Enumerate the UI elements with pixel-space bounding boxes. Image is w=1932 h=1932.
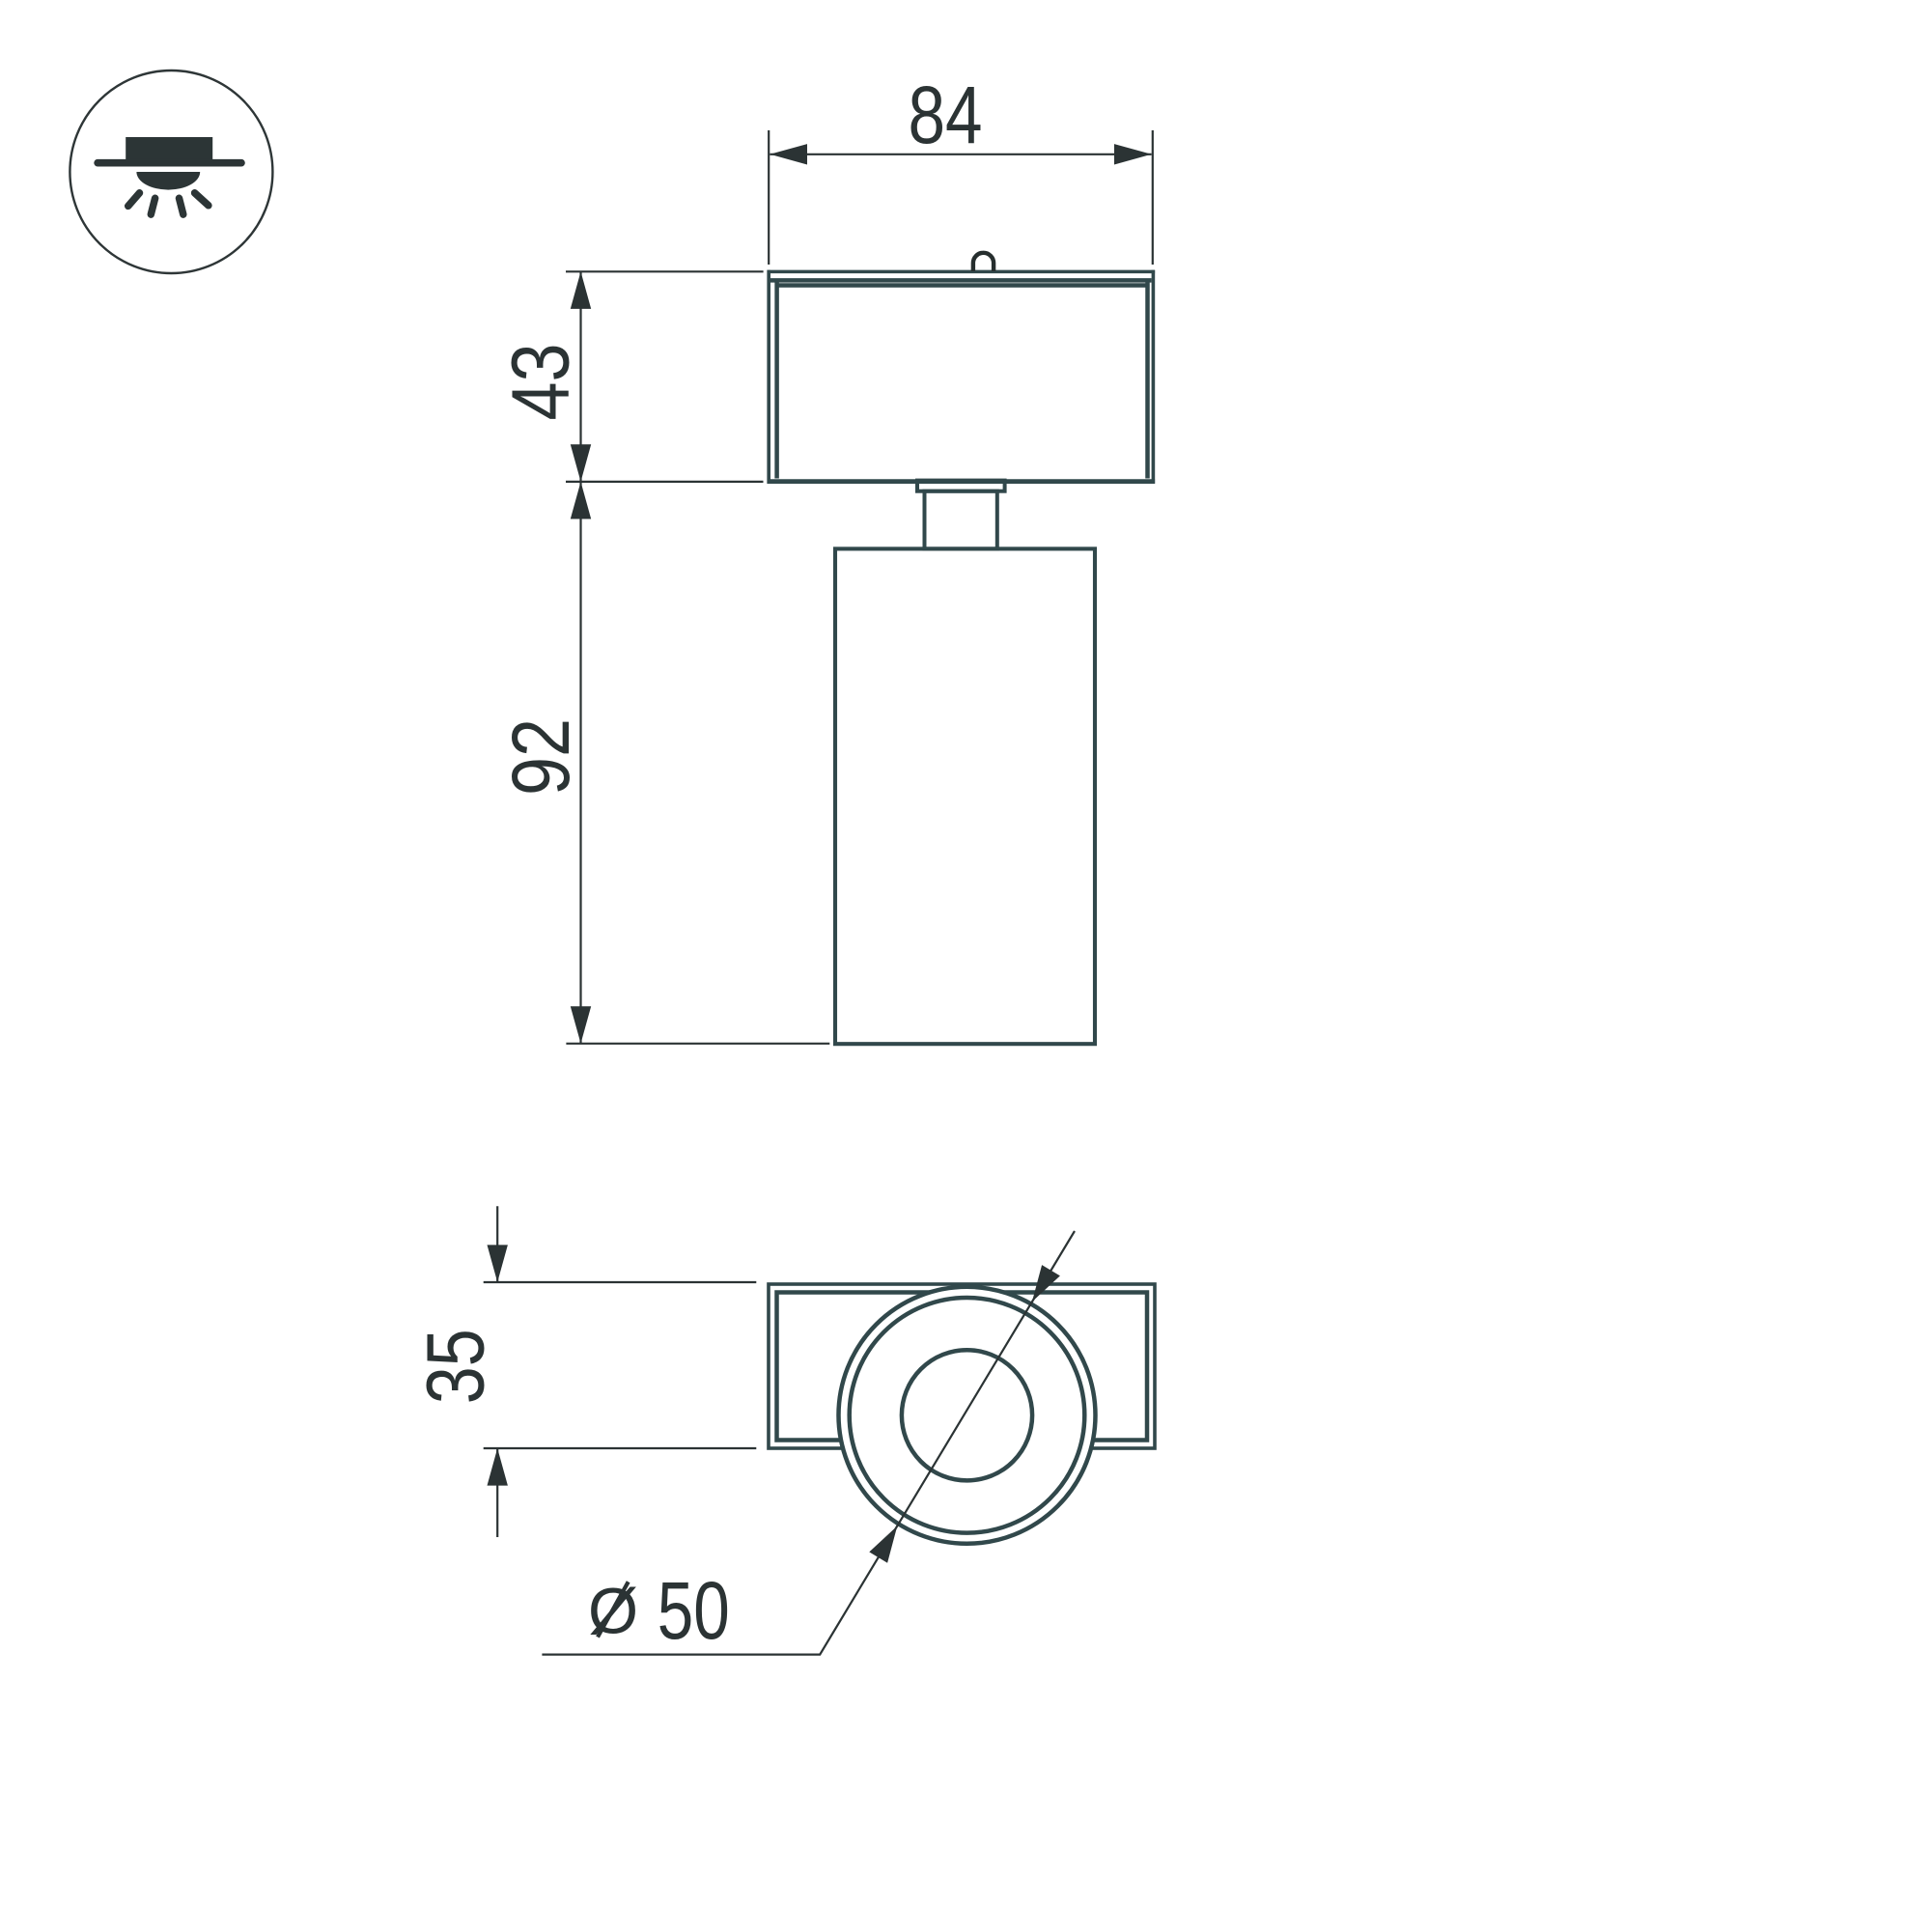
svg-text:35: 35 — [410, 1329, 501, 1404]
svg-text:92: 92 — [495, 718, 586, 796]
svg-text:43: 43 — [495, 344, 586, 421]
svg-text:50: 50 — [658, 1565, 730, 1656]
svg-text:84: 84 — [909, 70, 983, 160]
